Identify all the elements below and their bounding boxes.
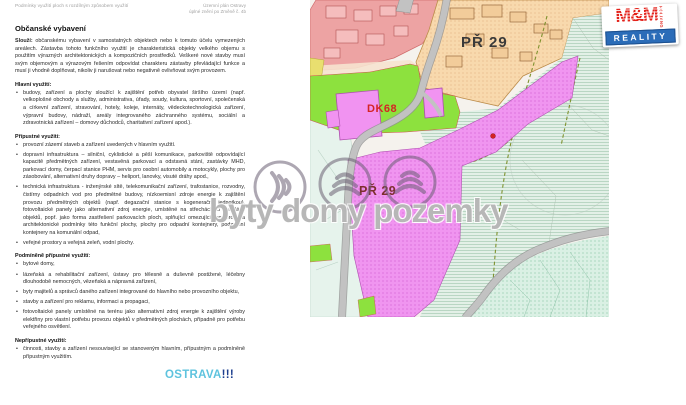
bullet-item: lázeňská a rehabilitační zařízení, ústav… bbox=[15, 272, 245, 287]
watermark-text: byty domy pozemky bbox=[209, 192, 507, 230]
header-left: Podmínky využití ploch s rozdílným způso… bbox=[15, 4, 128, 9]
zone-label-dk68: DK68 bbox=[367, 103, 397, 115]
zone-green-strip-2 bbox=[358, 296, 376, 317]
mm-holding-label: HOLDING bbox=[658, 6, 664, 28]
bullet-item: veřejné prostory a veřejná zeleň, vodní … bbox=[15, 240, 245, 248]
section-heading-permitted: Přípustné využití: bbox=[15, 134, 245, 140]
bullet-item: byty majitelů a správců daného zařízení … bbox=[15, 289, 245, 297]
zone-label-pr29-top: PŘ 29 bbox=[461, 34, 508, 51]
mm-reality-logo: M&M HOLDING REALITY bbox=[601, 3, 679, 47]
ostrava-logo: OSTRAVA!!! bbox=[165, 369, 234, 381]
bullet-item: provozní zázemí staveb a zařízení uveden… bbox=[15, 142, 245, 150]
plan-page: Podmínky využití ploch s rozdílným způso… bbox=[0, 0, 686, 405]
bullet-list-conditional: bytové domy, lázeňská a rehabilitační za… bbox=[15, 261, 245, 332]
red-marker bbox=[491, 134, 496, 139]
intro-label: Slouží: bbox=[15, 38, 33, 44]
mm-logo-wordmark: M&M bbox=[615, 6, 658, 26]
zone-dk68-annex bbox=[326, 110, 340, 128]
page-title: Občanské vybavení bbox=[15, 24, 245, 33]
bullet-list-forbidden: činnosti, stavby a zařízení nesouvisejíc… bbox=[15, 346, 245, 361]
ostrava-exclamation: !!! bbox=[222, 369, 234, 381]
bullet-item: bytové domy, bbox=[15, 261, 245, 269]
section-heading-conditional: Podmíněně přípustné využití: bbox=[15, 253, 245, 259]
mm-reality-label: REALITY bbox=[605, 28, 676, 45]
zone-green-strip-1 bbox=[310, 244, 332, 262]
intro-paragraph: Slouží: občanskému vybavení v samostatný… bbox=[15, 38, 245, 76]
bullet-item: dopravní infrastruktura – silniční, cykl… bbox=[15, 152, 245, 182]
chevron-up-icon bbox=[396, 173, 424, 193]
bullet-item: fotovoltaické panely umístěné na terénu … bbox=[15, 309, 245, 332]
bullet-item: činnosti, stavby a zařízení nesouvisejíc… bbox=[15, 346, 245, 361]
section-heading-main-use: Hlavní využití: bbox=[15, 82, 245, 88]
section-heading-forbidden: Nepřípustné využití: bbox=[15, 338, 245, 344]
bullet-list-main-use: budovy, zařízení a plochy sloužící k zaj… bbox=[15, 90, 245, 128]
header-right: Územní plán Ostravy úplné znění po Změně… bbox=[140, 3, 246, 16]
ostrava-wordmark: OSTRAVA bbox=[165, 369, 222, 381]
bullet-item: budovy, zařízení a plochy sloužící k zaj… bbox=[15, 90, 245, 128]
bullet-item: stavby a zařízení pro reklamu, informaci… bbox=[15, 299, 245, 307]
plan-subtitle: úplné znění po Změně č. 4b bbox=[140, 9, 246, 15]
intro-text: občanskému vybavení v samostatných objek… bbox=[15, 38, 245, 74]
